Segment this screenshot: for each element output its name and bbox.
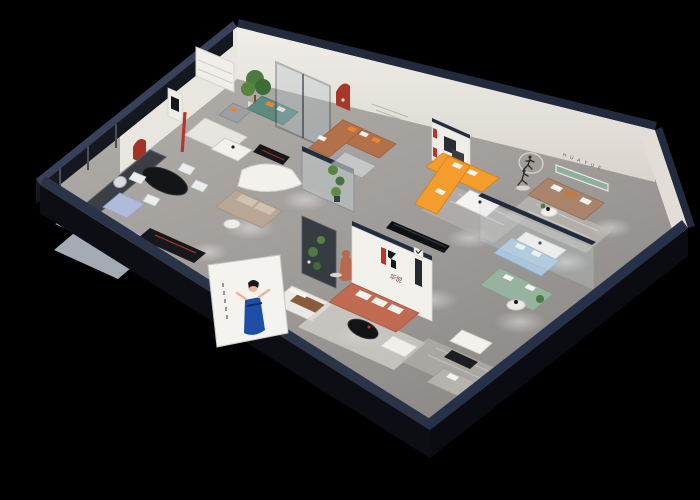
check-sign [414, 247, 423, 287]
niche-statuette [341, 98, 344, 101]
floor-plant [536, 295, 544, 303]
plinth [516, 185, 530, 190]
tv-pillar [168, 88, 182, 122]
case-plant [308, 247, 318, 257]
tray [330, 273, 342, 277]
case-plant [317, 236, 325, 244]
woman-poster [208, 255, 288, 347]
table-decor [231, 145, 234, 148]
black-teapot [546, 207, 550, 211]
render-stage: H U A Y U E [0, 0, 700, 500]
showroom-scene: H U A Y U E [0, 0, 700, 500]
sign-dark-strip [415, 258, 422, 287]
plant-pot [334, 196, 340, 202]
black-vase [514, 300, 518, 304]
side-table [224, 220, 240, 229]
table-plant [541, 204, 546, 209]
floor-glow [494, 310, 546, 334]
case-plant [313, 262, 321, 270]
table-decor [368, 326, 371, 329]
case-dish [307, 260, 310, 263]
